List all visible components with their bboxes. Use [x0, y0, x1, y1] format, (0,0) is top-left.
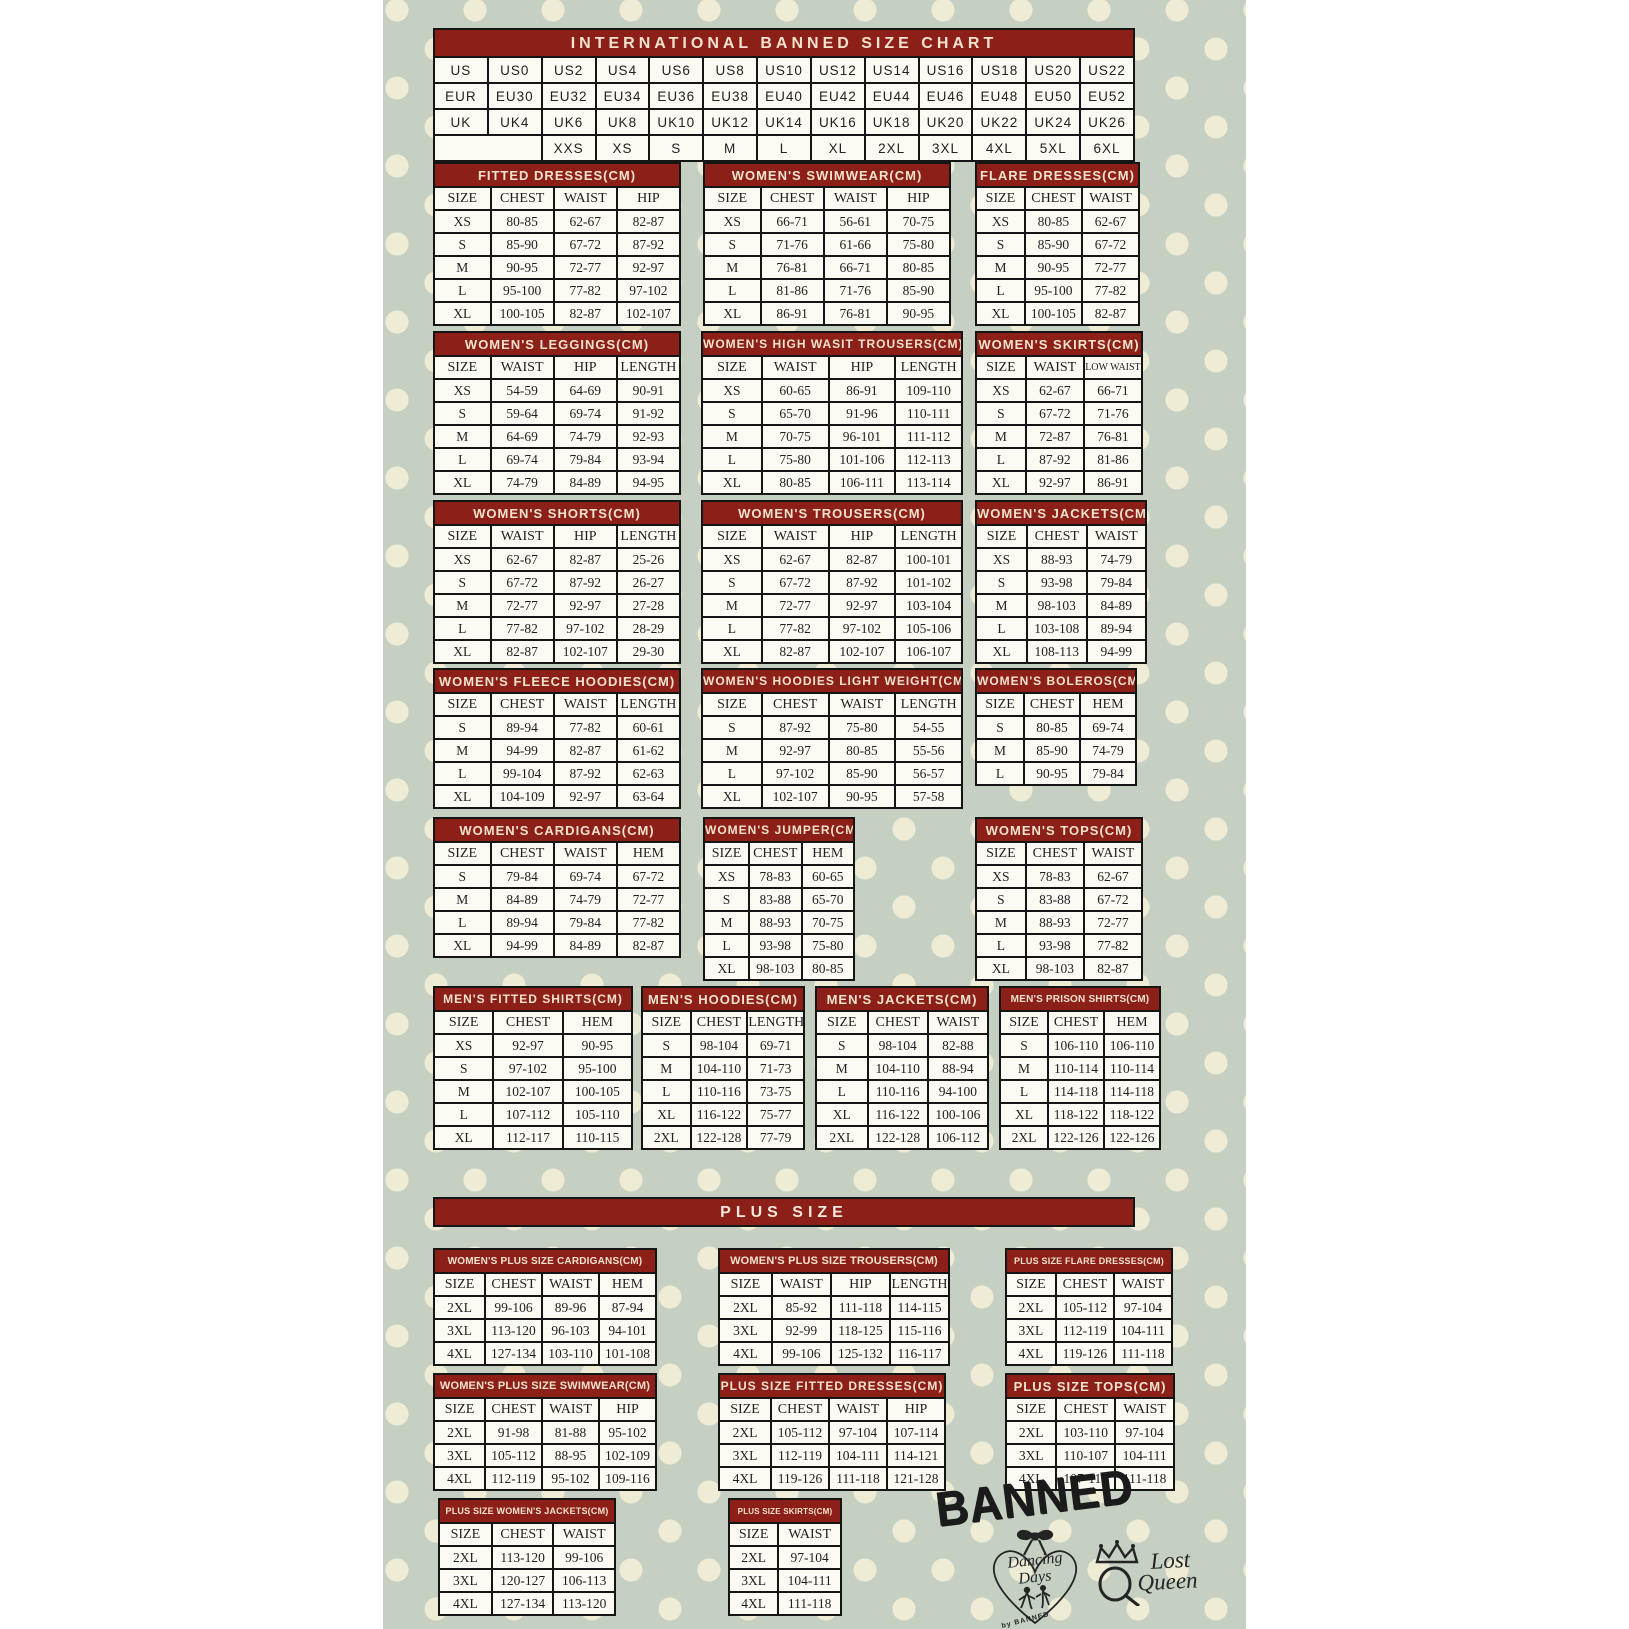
data-cell: 110-111 [895, 402, 962, 425]
table-plus-size-fitted-dresses-title: PLUS SIZE FITTED DRESSES(CM) [718, 1373, 946, 1397]
data-cell: 85-90 [1024, 739, 1080, 762]
data-cell: 80-85 [762, 471, 829, 494]
conversion-chart: INTERNATIONAL BANNED SIZE CHARTUSUS0US2U… [433, 28, 1135, 162]
data-cell: 90-95 [829, 785, 896, 808]
data-cell: S [434, 865, 491, 888]
header-row: SIZEWAISTHIPLENGTH [702, 356, 962, 379]
table-fitted-dresses-title: FITTED DRESSES(CM) [433, 162, 681, 186]
data-cell: 118-122 [1048, 1103, 1104, 1126]
data-cell: 92-99 [772, 1319, 831, 1342]
data-cell: XL [642, 1103, 691, 1126]
data-cell: 94-100 [928, 1080, 988, 1103]
table-fitted-dresses-grid: SIZECHESTWAISTHIPXS80-8562-6782-87S85-90… [433, 186, 681, 326]
data-cell: S [434, 571, 491, 594]
data-cell: 77-82 [1084, 934, 1142, 957]
table-row: XL108-11394-99 [976, 640, 1146, 663]
data-cell: S [976, 888, 1026, 911]
data-cell: XXS [542, 135, 596, 161]
table-womens-jumper: WOMEN'S JUMPER(CM)SIZECHESTHEMXS78-8360-… [703, 817, 855, 981]
data-cell: 98-104 [691, 1034, 748, 1057]
table-womens-leggings: WOMEN'S LEGGINGS(CM)SIZEWAISTHIPLENGTHXS… [433, 331, 681, 495]
data-cell: 87-92 [762, 716, 829, 739]
data-cell: L [434, 911, 491, 934]
header-row: SIZEWAISTHIPLENGTH [719, 1273, 949, 1296]
column-header-cell: HIP [887, 1398, 945, 1421]
data-cell: 85-90 [1025, 233, 1082, 256]
data-cell: 116-117 [890, 1342, 949, 1365]
data-cell: UK24 [1026, 109, 1080, 135]
column-header-cell: SIZE [976, 842, 1026, 865]
table-womens-tops-title: WOMEN'S TOPS(CM) [975, 817, 1143, 841]
column-header-cell: SIZE [1000, 1011, 1048, 1034]
data-cell: 97-102 [829, 617, 896, 640]
table-row: USUS0US2US4US6US8US10US12US14US16US18US2… [434, 57, 1134, 83]
data-cell: 64-69 [554, 379, 617, 402]
data-cell: L [434, 448, 491, 471]
header-row: SIZECHESTWAISTHIP [704, 187, 950, 210]
data-cell: 71-73 [747, 1057, 804, 1080]
table-womens-jackets: WOMEN'S JACKETS(CM)SIZECHESTWAISTXS88-93… [975, 500, 1147, 664]
table-row: S98-10482-88 [816, 1034, 988, 1057]
table-row: L93-9877-82 [976, 934, 1142, 957]
data-cell: 88-93 [1026, 911, 1084, 934]
table-row: S65-7091-96110-111 [702, 402, 962, 425]
data-cell: 82-88 [928, 1034, 988, 1057]
data-cell: 89-96 [542, 1296, 599, 1319]
data-cell: 82-87 [554, 302, 617, 325]
data-cell: 92-97 [1026, 471, 1084, 494]
table-womens-cardigans-grid: SIZECHESTWAISTHEMS79-8469-7467-72M84-897… [433, 841, 681, 958]
table-row: L114-118114-118 [1000, 1080, 1160, 1103]
column-header-cell: SIZE [702, 693, 762, 716]
table-row: M104-11071-73 [642, 1057, 804, 1080]
table-row: L110-11673-75 [642, 1080, 804, 1103]
table-row: L95-10077-82 [976, 279, 1139, 302]
table-row: S106-110106-110 [1000, 1034, 1160, 1057]
table-row: L99-10487-9262-63 [434, 762, 680, 785]
data-cell: S [976, 571, 1027, 594]
dancing-days-logo: Dancing Days by BANNED [979, 1526, 1091, 1628]
data-cell: 62-67 [1026, 379, 1084, 402]
data-cell: US16 [919, 57, 973, 83]
table-row: XL98-10380-85 [704, 957, 854, 980]
table-row: M102-107100-105 [434, 1080, 632, 1103]
column-header-cell: WAIST [928, 1011, 988, 1034]
data-cell: 55-56 [895, 739, 962, 762]
data-cell: M [434, 1080, 493, 1103]
column-header-cell: WAIST [1115, 1398, 1174, 1421]
column-header-cell: CHEST [749, 842, 802, 865]
table-row: XS54-5964-6990-91 [434, 379, 680, 402]
data-cell: 84-89 [554, 934, 617, 957]
data-cell: 6XL [1080, 135, 1134, 161]
table-row: 4XL119-126111-118 [1006, 1342, 1172, 1365]
lost-queen-text-line2: Queen [1137, 1569, 1198, 1594]
data-cell: 105-112 [771, 1421, 829, 1444]
data-cell: 80-85 [802, 957, 855, 980]
data-cell: M [434, 256, 491, 279]
table-womens-shorts: WOMEN'S SHORTS(CM)SIZEWAISTHIPLENGTHXS62… [433, 500, 681, 664]
data-cell: 100-105 [491, 302, 554, 325]
table-row: S97-10295-100 [434, 1057, 632, 1080]
table-womens-skirts-title: WOMEN'S SKIRTS(CM) [975, 331, 1143, 355]
data-cell: 91-92 [617, 402, 680, 425]
column-header-cell: HEM [1104, 1011, 1160, 1034]
table-row: 4XL119-126111-118121-128 [719, 1467, 945, 1490]
table-row: S87-9275-8054-55 [702, 716, 962, 739]
header-row: SIZEWAISTLOW WAIST [976, 356, 1142, 379]
data-cell: XL [702, 640, 762, 663]
data-cell: 86-91 [1084, 471, 1142, 494]
data-cell: M [816, 1057, 868, 1080]
column-header-cell: SIZE [1006, 1273, 1056, 1296]
table-row: 3XL105-11288-95102-109 [434, 1444, 656, 1467]
data-cell: XL [1000, 1103, 1048, 1126]
table-row: S80-8569-74 [976, 716, 1136, 739]
header-row: SIZECHESTWAISTHIP [434, 1398, 656, 1421]
data-cell: 61-62 [617, 739, 680, 762]
data-cell: 72-77 [554, 256, 617, 279]
data-cell: 56-61 [824, 210, 887, 233]
data-cell: XS [976, 865, 1026, 888]
data-cell: US2 [542, 57, 596, 83]
data-cell: 69-71 [747, 1034, 804, 1057]
data-cell: 94-99 [491, 934, 554, 957]
column-header-cell: WAIST [1026, 356, 1084, 379]
data-cell: XS [702, 548, 762, 571]
column-header-cell: CHEST [761, 187, 824, 210]
column-header-cell: CHEST [771, 1398, 829, 1421]
data-cell: 82-87 [1082, 302, 1139, 325]
data-cell: S [1000, 1034, 1048, 1057]
data-cell: 120-127 [492, 1569, 554, 1592]
header-row: SIZECHESTHEM [976, 693, 1136, 716]
data-cell: 118-122 [1104, 1103, 1160, 1126]
table-womens-tops: WOMEN'S TOPS(CM)SIZECHESTWAISTXS78-8362-… [975, 817, 1143, 981]
data-cell: 2XL [816, 1126, 868, 1149]
data-cell: 66-71 [1084, 379, 1142, 402]
table-womens-boleros-title: WOMEN'S BOLEROS(CM) [975, 668, 1137, 692]
data-cell: 101-106 [829, 448, 896, 471]
data-cell: 28-29 [617, 617, 680, 640]
data-cell: US10 [757, 57, 811, 83]
table-womens-fleece-hoodies-title: WOMEN'S FLEECE HOODIES(CM) [433, 668, 681, 692]
table-row: L77-8297-102105-106 [702, 617, 962, 640]
table-row: 3XL120-127106-113 [439, 1569, 615, 1592]
data-cell: S [702, 402, 762, 425]
column-header-cell: WAIST [824, 187, 887, 210]
table-row: XL92-9786-91 [976, 471, 1142, 494]
data-cell: 101-108 [599, 1342, 656, 1365]
data-cell: US8 [703, 57, 757, 83]
column-header-cell: HIP [617, 187, 680, 210]
data-cell: 99-104 [491, 762, 554, 785]
data-cell: 113-120 [485, 1319, 542, 1342]
table-row: S59-6469-7491-92 [434, 402, 680, 425]
table-row: XL98-10382-87 [976, 957, 1142, 980]
data-cell: 77-82 [1082, 279, 1139, 302]
data-cell: 82-87 [829, 548, 896, 571]
table-womens-boleros: WOMEN'S BOLEROS(CM)SIZECHESTHEMS80-8569-… [975, 668, 1137, 786]
data-cell: US14 [865, 57, 919, 83]
header-row: SIZEWAISTHIPLENGTH [702, 525, 962, 548]
data-cell: EU40 [757, 83, 811, 109]
table-womens-cardigans: WOMEN'S CARDIGANS(CM)SIZECHESTWAISTHEMS7… [433, 817, 681, 958]
polka-dot-background: INTERNATIONAL BANNED SIZE CHARTUSUS0US2U… [383, 0, 1246, 1629]
data-cell: 79-84 [1087, 571, 1147, 594]
header-row: SIZECHESTWAIST [976, 187, 1139, 210]
column-header-cell: HIP [887, 187, 950, 210]
data-cell: 60-65 [762, 379, 829, 402]
data-cell: US20 [1026, 57, 1080, 83]
data-cell: S [704, 888, 749, 911]
data-cell: 3XL [434, 1444, 485, 1467]
column-header-cell: WAIST [554, 693, 617, 716]
data-cell: 87-92 [1026, 448, 1084, 471]
table-row: XL94-9984-8982-87 [434, 934, 680, 957]
table-row: S83-8867-72 [976, 888, 1142, 911]
table-row: 3XL113-12096-10394-101 [434, 1319, 656, 1342]
data-cell: 104-110 [868, 1057, 928, 1080]
data-cell: 109-110 [895, 379, 962, 402]
table-row: XL102-10790-9557-58 [702, 785, 962, 808]
data-cell: 70-75 [802, 911, 855, 934]
data-cell: S [434, 1057, 493, 1080]
data-cell: 102-109 [599, 1444, 656, 1467]
table-row: XS66-7156-6170-75 [704, 210, 950, 233]
column-header-cell: WAIST [554, 187, 617, 210]
table-row: M90-9572-77 [976, 256, 1139, 279]
column-header-cell: CHEST [868, 1011, 928, 1034]
data-cell: 77-82 [762, 617, 829, 640]
table-row: XL86-9176-8190-95 [704, 302, 950, 325]
data-cell: 122-128 [691, 1126, 748, 1149]
data-cell: XS [976, 548, 1027, 571]
table-row: 2XL97-104 [729, 1546, 841, 1569]
column-header-cell: HIP [829, 356, 896, 379]
data-cell: EU38 [703, 83, 757, 109]
data-cell: 102-107 [617, 302, 680, 325]
data-cell: 110-114 [1048, 1057, 1104, 1080]
table-row: 4XL112-11995-102109-116 [434, 1467, 656, 1490]
data-cell: XL [702, 785, 762, 808]
data-cell: 92-97 [762, 739, 829, 762]
data-cell: 77-82 [554, 279, 617, 302]
column-header-cell: CHEST [491, 842, 554, 865]
column-header-cell: HIP [829, 525, 896, 548]
data-cell: XL [976, 640, 1027, 663]
data-cell: L [434, 617, 491, 640]
data-cell: 63-64 [617, 785, 680, 808]
table-row: 3XL104-111 [729, 1569, 841, 1592]
data-cell: 3XL [1006, 1319, 1056, 1342]
table-row: XL116-122100-106 [816, 1103, 988, 1126]
data-cell: 79-84 [554, 448, 617, 471]
size-chart-page: { "plus_size_header": "PLUS SIZE", "colo… [0, 0, 1629, 1629]
table-row: L97-10285-9056-57 [702, 762, 962, 785]
data-cell: 75-80 [802, 934, 855, 957]
column-header-cell: HEM [617, 842, 680, 865]
data-cell: 81-86 [1084, 448, 1142, 471]
table-row: XS88-9374-79 [976, 548, 1146, 571]
data-cell: 110-116 [868, 1080, 928, 1103]
data-cell: 113-120 [492, 1546, 554, 1569]
data-cell: S [704, 233, 761, 256]
data-cell: 110-116 [691, 1080, 748, 1103]
column-header-cell: WAIST [491, 525, 554, 548]
column-header-cell: HEM [1080, 693, 1136, 716]
data-cell: 2XL [642, 1126, 691, 1149]
table-womens-jumper-grid: SIZECHESTHEMXS78-8360-65S83-8865-70M88-9… [703, 841, 855, 981]
data-cell: 119-126 [771, 1467, 829, 1490]
data-cell: XS [434, 210, 491, 233]
data-cell: EU36 [649, 83, 703, 109]
data-cell: 4XL [434, 1467, 485, 1490]
table-row: M88-9372-77 [976, 911, 1142, 934]
data-cell: 3XL [434, 1319, 485, 1342]
table-womens-jackets-title: WOMEN'S JACKETS(CM) [975, 500, 1147, 524]
data-cell: S [649, 135, 703, 161]
data-cell: M [976, 739, 1024, 762]
table-womens-fleece-hoodies: WOMEN'S FLEECE HOODIES(CM)SIZECHESTWAIST… [433, 668, 681, 809]
data-cell: 78-83 [1026, 865, 1084, 888]
table-womens-leggings-grid: SIZEWAISTHIPLENGTHXS54-5964-6990-91S59-6… [433, 355, 681, 495]
data-cell: M [976, 256, 1025, 279]
data-cell: 113-114 [895, 471, 962, 494]
column-header-cell: LOW WAIST [1084, 356, 1142, 379]
column-header-cell: SIZE [702, 525, 762, 548]
column-header-cell: HEM [563, 1011, 632, 1034]
data-cell: UK14 [757, 109, 811, 135]
data-cell: 62-67 [1084, 865, 1142, 888]
data-cell: 88-94 [928, 1057, 988, 1080]
data-cell: S [976, 402, 1026, 425]
data-cell: 3XL [719, 1319, 772, 1342]
data-cell: UK [434, 109, 488, 135]
data-cell: 77-82 [554, 716, 617, 739]
column-header-cell: CHEST [493, 1011, 562, 1034]
table-mens-fitted-shirts-title: MEN'S FITTED SHIRTS(CM) [433, 986, 633, 1010]
data-cell: L [702, 448, 762, 471]
data-cell: L [702, 617, 762, 640]
table-womens-swimwear: WOMEN'S SWIMWEAR(CM)SIZECHESTWAISTHIPXS6… [703, 162, 951, 326]
data-cell: 62-63 [617, 762, 680, 785]
data-cell: 76-81 [824, 302, 887, 325]
data-cell: XS [704, 210, 761, 233]
column-header-cell: LENGTH [617, 525, 680, 548]
data-cell: 111-118 [1114, 1342, 1172, 1365]
header-row: SIZECHESTWAIST [816, 1011, 988, 1034]
data-cell: 127-134 [492, 1592, 554, 1615]
data-cell: 4XL [719, 1342, 772, 1365]
table-row: XL118-122118-122 [1000, 1103, 1160, 1126]
data-cell: US6 [649, 57, 703, 83]
data-cell: 85-92 [772, 1296, 831, 1319]
data-cell: L [704, 279, 761, 302]
data-cell: XL [811, 135, 865, 161]
table-mens-fitted-shirts-grid: SIZECHESTHEMXS92-9790-95S97-10295-100M10… [433, 1010, 633, 1150]
column-header-cell: SIZE [642, 1011, 691, 1034]
data-cell: 78-83 [749, 865, 802, 888]
table-row: M84-8974-7972-77 [434, 888, 680, 911]
table-fitted-dresses: FITTED DRESSES(CM)SIZECHESTWAISTHIPXS80-… [433, 162, 681, 326]
table-womens-plus-size-swimwear: WOMEN'S PLUS SIZE SWIMWEAR(CM)SIZECHESTW… [433, 1373, 657, 1491]
table-row: S83-8865-70 [704, 888, 854, 911]
data-cell: 71-76 [761, 233, 824, 256]
data-cell: 88-93 [1027, 548, 1087, 571]
table-mens-hoodies-title: MEN'S HOODIES(CM) [641, 986, 805, 1010]
header-row: SIZECHESTWAIST [976, 525, 1146, 548]
data-cell: 87-92 [829, 571, 896, 594]
data-cell: 82-87 [554, 739, 617, 762]
data-cell: 92-97 [829, 594, 896, 617]
table-row: 2XL105-11297-104 [1006, 1296, 1172, 1319]
data-cell: 2XL [434, 1296, 485, 1319]
table-row: 2XL105-11297-104107-114 [719, 1421, 945, 1444]
data-cell: 84-89 [491, 888, 554, 911]
table-womens-swimwear-grid: SIZECHESTWAISTHIPXS66-7156-6170-75S71-76… [703, 186, 951, 326]
column-header-cell: CHEST [1056, 1273, 1114, 1296]
data-cell: 98-104 [868, 1034, 928, 1057]
table-plus-size-flare-dresses-title: PLUS SIZE FLARE DRESSES(CM) [1005, 1248, 1173, 1272]
data-cell: 88-93 [749, 911, 802, 934]
data-cell: L [976, 617, 1027, 640]
table-row: XS62-6782-87100-101 [702, 548, 962, 571]
data-cell: 62-67 [762, 548, 829, 571]
data-cell: 89-94 [491, 716, 554, 739]
data-cell: L [642, 1080, 691, 1103]
data-cell: 72-77 [1082, 256, 1139, 279]
data-cell: 90-95 [491, 256, 554, 279]
data-cell: 86-91 [761, 302, 824, 325]
column-header-cell: SIZE [434, 1398, 485, 1421]
column-header-cell: SIZE [719, 1398, 771, 1421]
data-cell: M [1000, 1057, 1048, 1080]
data-cell: 70-75 [762, 425, 829, 448]
data-cell: 87-92 [554, 571, 617, 594]
data-cell: 65-70 [762, 402, 829, 425]
table-mens-hoodies: MEN'S HOODIES(CM)SIZECHESTLENGTHS98-1046… [641, 986, 805, 1150]
table-row: M94-9982-8761-62 [434, 739, 680, 762]
column-header-cell: LENGTH [895, 356, 962, 379]
data-cell: 2XL [1006, 1421, 1056, 1444]
data-cell: 92-97 [617, 256, 680, 279]
data-cell: 83-88 [1026, 888, 1084, 911]
data-cell: 94-101 [599, 1319, 656, 1342]
header-row: SIZECHESTWAIST [1006, 1273, 1172, 1296]
table-womens-plus-size-swimwear-title: WOMEN'S PLUS SIZE SWIMWEAR(CM) [433, 1373, 657, 1397]
data-cell: 26-27 [617, 571, 680, 594]
table-womens-fleece-hoodies-grid: SIZECHESTWAISTLENGTHS89-9477-8260-61M94-… [433, 692, 681, 809]
data-cell: 72-77 [1084, 911, 1142, 934]
data-cell: 113-120 [553, 1592, 615, 1615]
data-cell: L [976, 448, 1026, 471]
table-row: XS92-9790-95 [434, 1034, 632, 1057]
data-cell: 87-92 [617, 233, 680, 256]
table-mens-prison-shirts-grid: SIZECHESTHEMS106-110106-110M110-114110-1… [999, 1010, 1161, 1150]
header-row: SIZECHESTWAIST [439, 1523, 615, 1546]
data-cell: 62-67 [1082, 210, 1139, 233]
column-header-cell: CHEST [1048, 1011, 1104, 1034]
data-cell: US12 [811, 57, 865, 83]
data-cell: 82-87 [491, 640, 554, 663]
table-row: L95-10077-8297-102 [434, 279, 680, 302]
table-row: 4XL111-118 [729, 1592, 841, 1615]
table-womens-skirts: WOMEN'S SKIRTS(CM)SIZEWAISTLOW WAISTXS62… [975, 331, 1143, 495]
data-cell: 91-96 [829, 402, 896, 425]
data-cell: XL [976, 957, 1026, 980]
column-header-cell: CHEST [1025, 187, 1082, 210]
